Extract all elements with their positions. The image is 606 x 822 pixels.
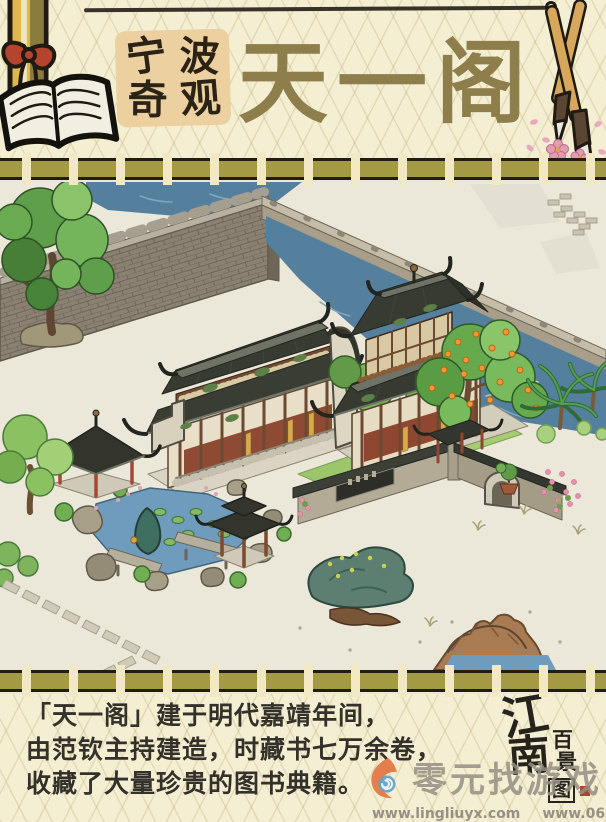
watermark-site-name: 零元找游戏 <box>412 752 602 803</box>
calligraphy-brushes-icon <box>518 0 606 172</box>
page-title: 天一阁 <box>238 10 535 140</box>
bamboo-divider-top <box>0 153 606 185</box>
badge-char: 观 <box>179 78 222 121</box>
watermark: 零元找游戏 www.lingliuyx.com www.06zyx.com <box>366 752 606 822</box>
watermark-url: www.06zyx.com <box>542 806 606 822</box>
watermark-url: www.lingliuyx.com <box>372 806 520 822</box>
header-banner: 宁 波 奇 观 天一阁 <box>0 0 606 158</box>
footer: 「天一阁」建于明代嘉靖年间， 由范钦主持建造，时藏书七万余卷， 收藏了大量珍贵的… <box>0 694 606 822</box>
logo-char: 百 <box>552 730 573 751</box>
bamboo-divider-bottom <box>0 665 606 697</box>
badge-char: 波 <box>178 36 220 78</box>
duck <box>131 537 137 543</box>
tianyi-pavilion-illustration <box>0 182 606 670</box>
region-badge: 宁 波 奇 观 <box>115 29 231 128</box>
flame-swirl-icon <box>366 756 406 800</box>
page: 宁 波 奇 观 天一阁 <box>0 0 606 822</box>
book-and-scroll-icon <box>0 0 120 164</box>
badge-char: 宁 <box>123 34 168 79</box>
badge-char: 奇 <box>127 81 167 121</box>
description-line: 「天一阁」建于明代嘉靖年间， <box>26 700 442 734</box>
